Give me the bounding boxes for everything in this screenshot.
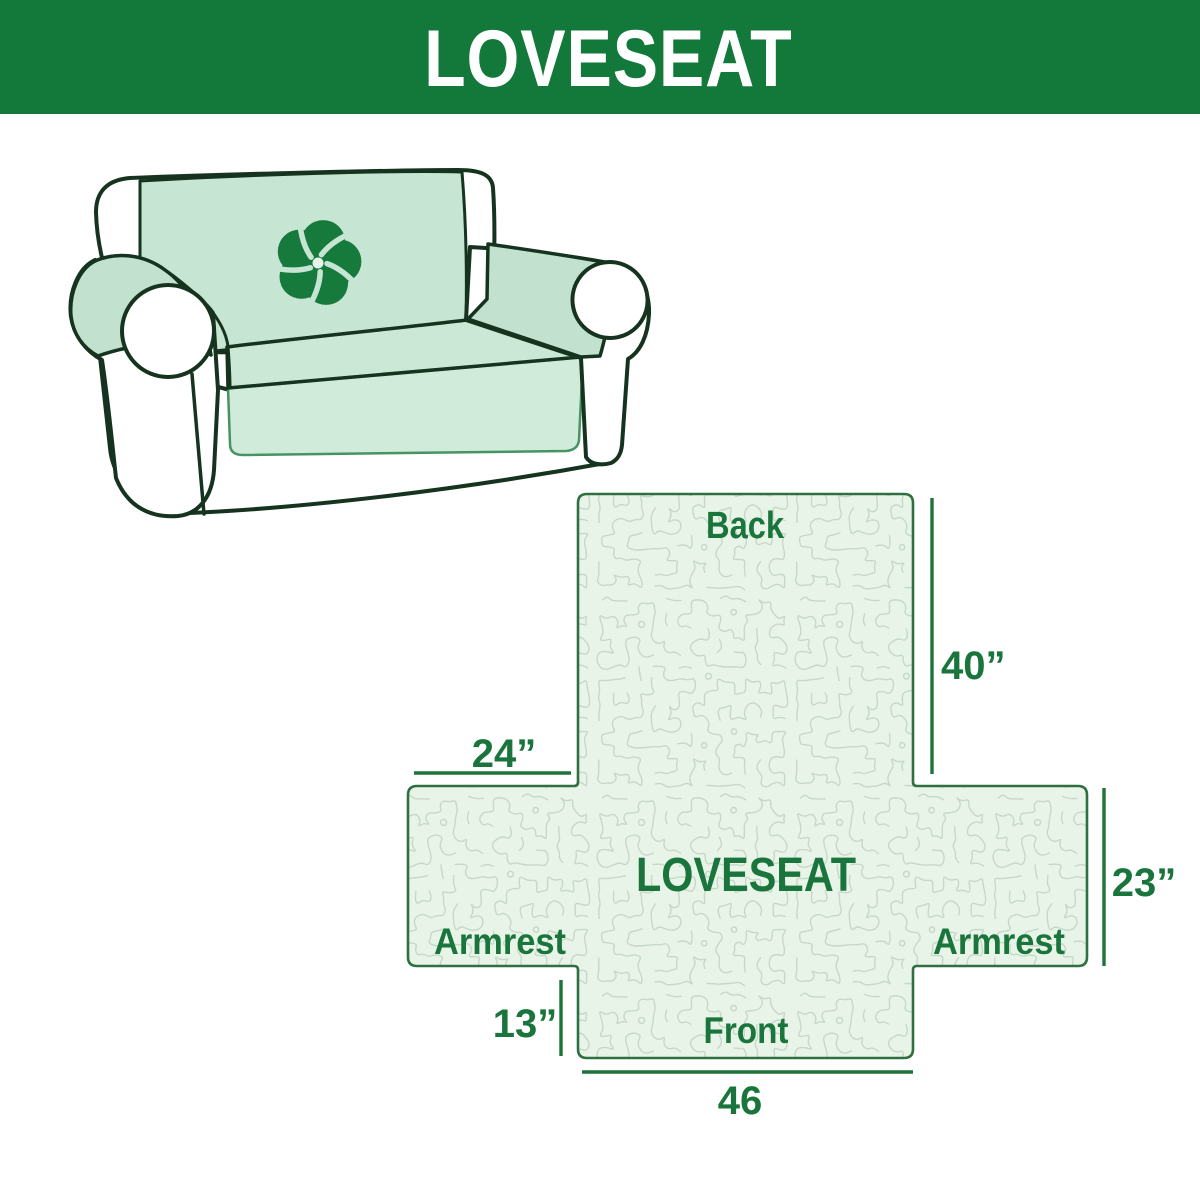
svg-text:23”: 23” <box>1112 861 1177 905</box>
svg-text:Armrest: Armrest <box>933 921 1065 962</box>
svg-text:Front: Front <box>704 1010 789 1051</box>
svg-text:40”: 40” <box>941 644 1006 688</box>
svg-text:Back: Back <box>706 505 785 547</box>
svg-text:LOVESEAT: LOVESEAT <box>636 849 856 902</box>
svg-text:24”: 24” <box>472 732 537 776</box>
svg-text:Armrest: Armrest <box>434 921 566 962</box>
svg-text:46: 46 <box>718 1079 763 1123</box>
svg-text:13”: 13” <box>493 1002 558 1046</box>
